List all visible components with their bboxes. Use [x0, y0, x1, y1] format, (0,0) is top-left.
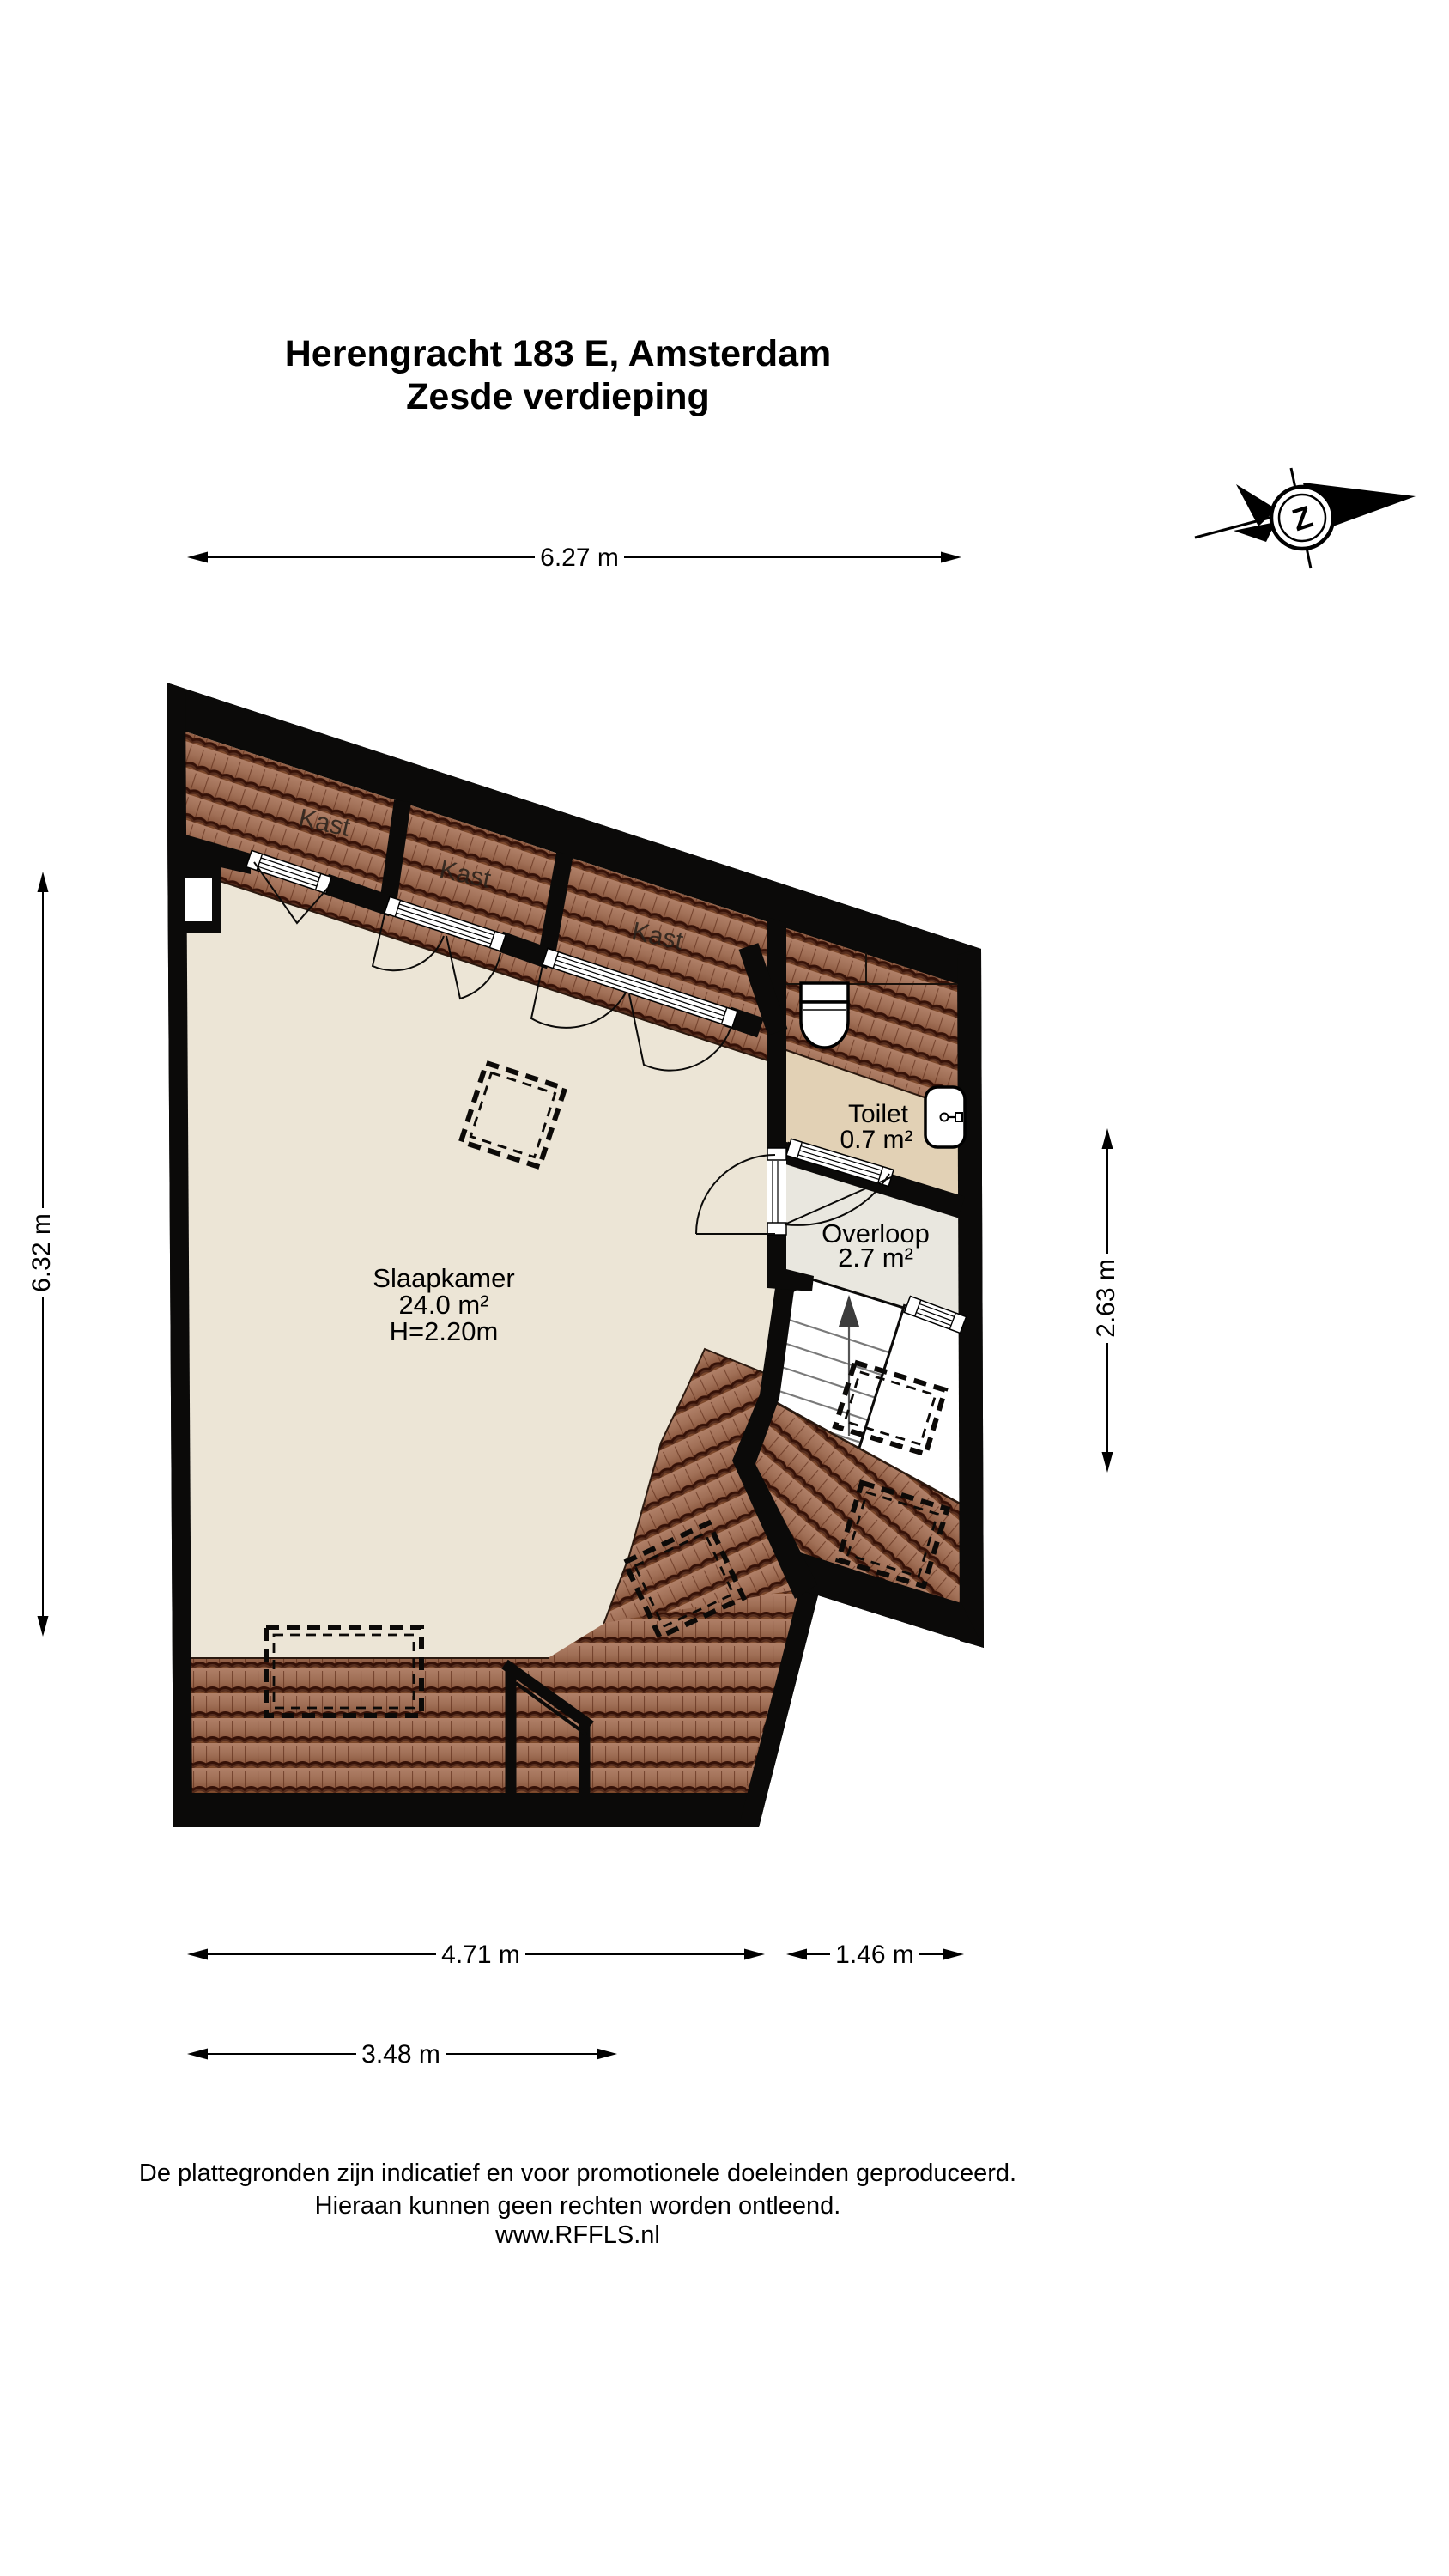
- svg-text:Toilet: Toilet: [848, 1100, 909, 1128]
- svg-text:Herengracht 183 E, Amsterdam: Herengracht 183 E, Amsterdam: [285, 333, 832, 374]
- svg-text:24.0 m²: 24.0 m²: [398, 1290, 488, 1320]
- svg-text:1.46 m: 1.46 m: [835, 1941, 914, 1969]
- svg-text:De plattegronden zijn indicati: De plattegronden zijn indicatief en voor…: [139, 2160, 1016, 2187]
- svg-text:www.RFFLS.nl: www.RFFLS.nl: [494, 2221, 660, 2249]
- svg-text:0.7 m²: 0.7 m²: [840, 1126, 912, 1154]
- svg-text:2.7 m²: 2.7 m²: [838, 1242, 913, 1273]
- svg-text:2.63 m: 2.63 m: [1092, 1259, 1120, 1338]
- svg-text:4.71 m: 4.71 m: [441, 1941, 520, 1969]
- svg-text:6.27 m: 6.27 m: [540, 544, 619, 572]
- svg-text:Hieraan kunnen geen rechten wo: Hieraan kunnen geen rechten worden ontle…: [315, 2192, 841, 2220]
- svg-text:Zesde verdieping: Zesde verdieping: [406, 376, 710, 417]
- svg-text:3.48 m: 3.48 m: [361, 2040, 440, 2069]
- svg-text:Slaapkamer: Slaapkamer: [373, 1263, 514, 1293]
- svg-text:6.32 m: 6.32 m: [27, 1213, 56, 1292]
- svg-text:H=2.20m: H=2.20m: [390, 1316, 499, 1346]
